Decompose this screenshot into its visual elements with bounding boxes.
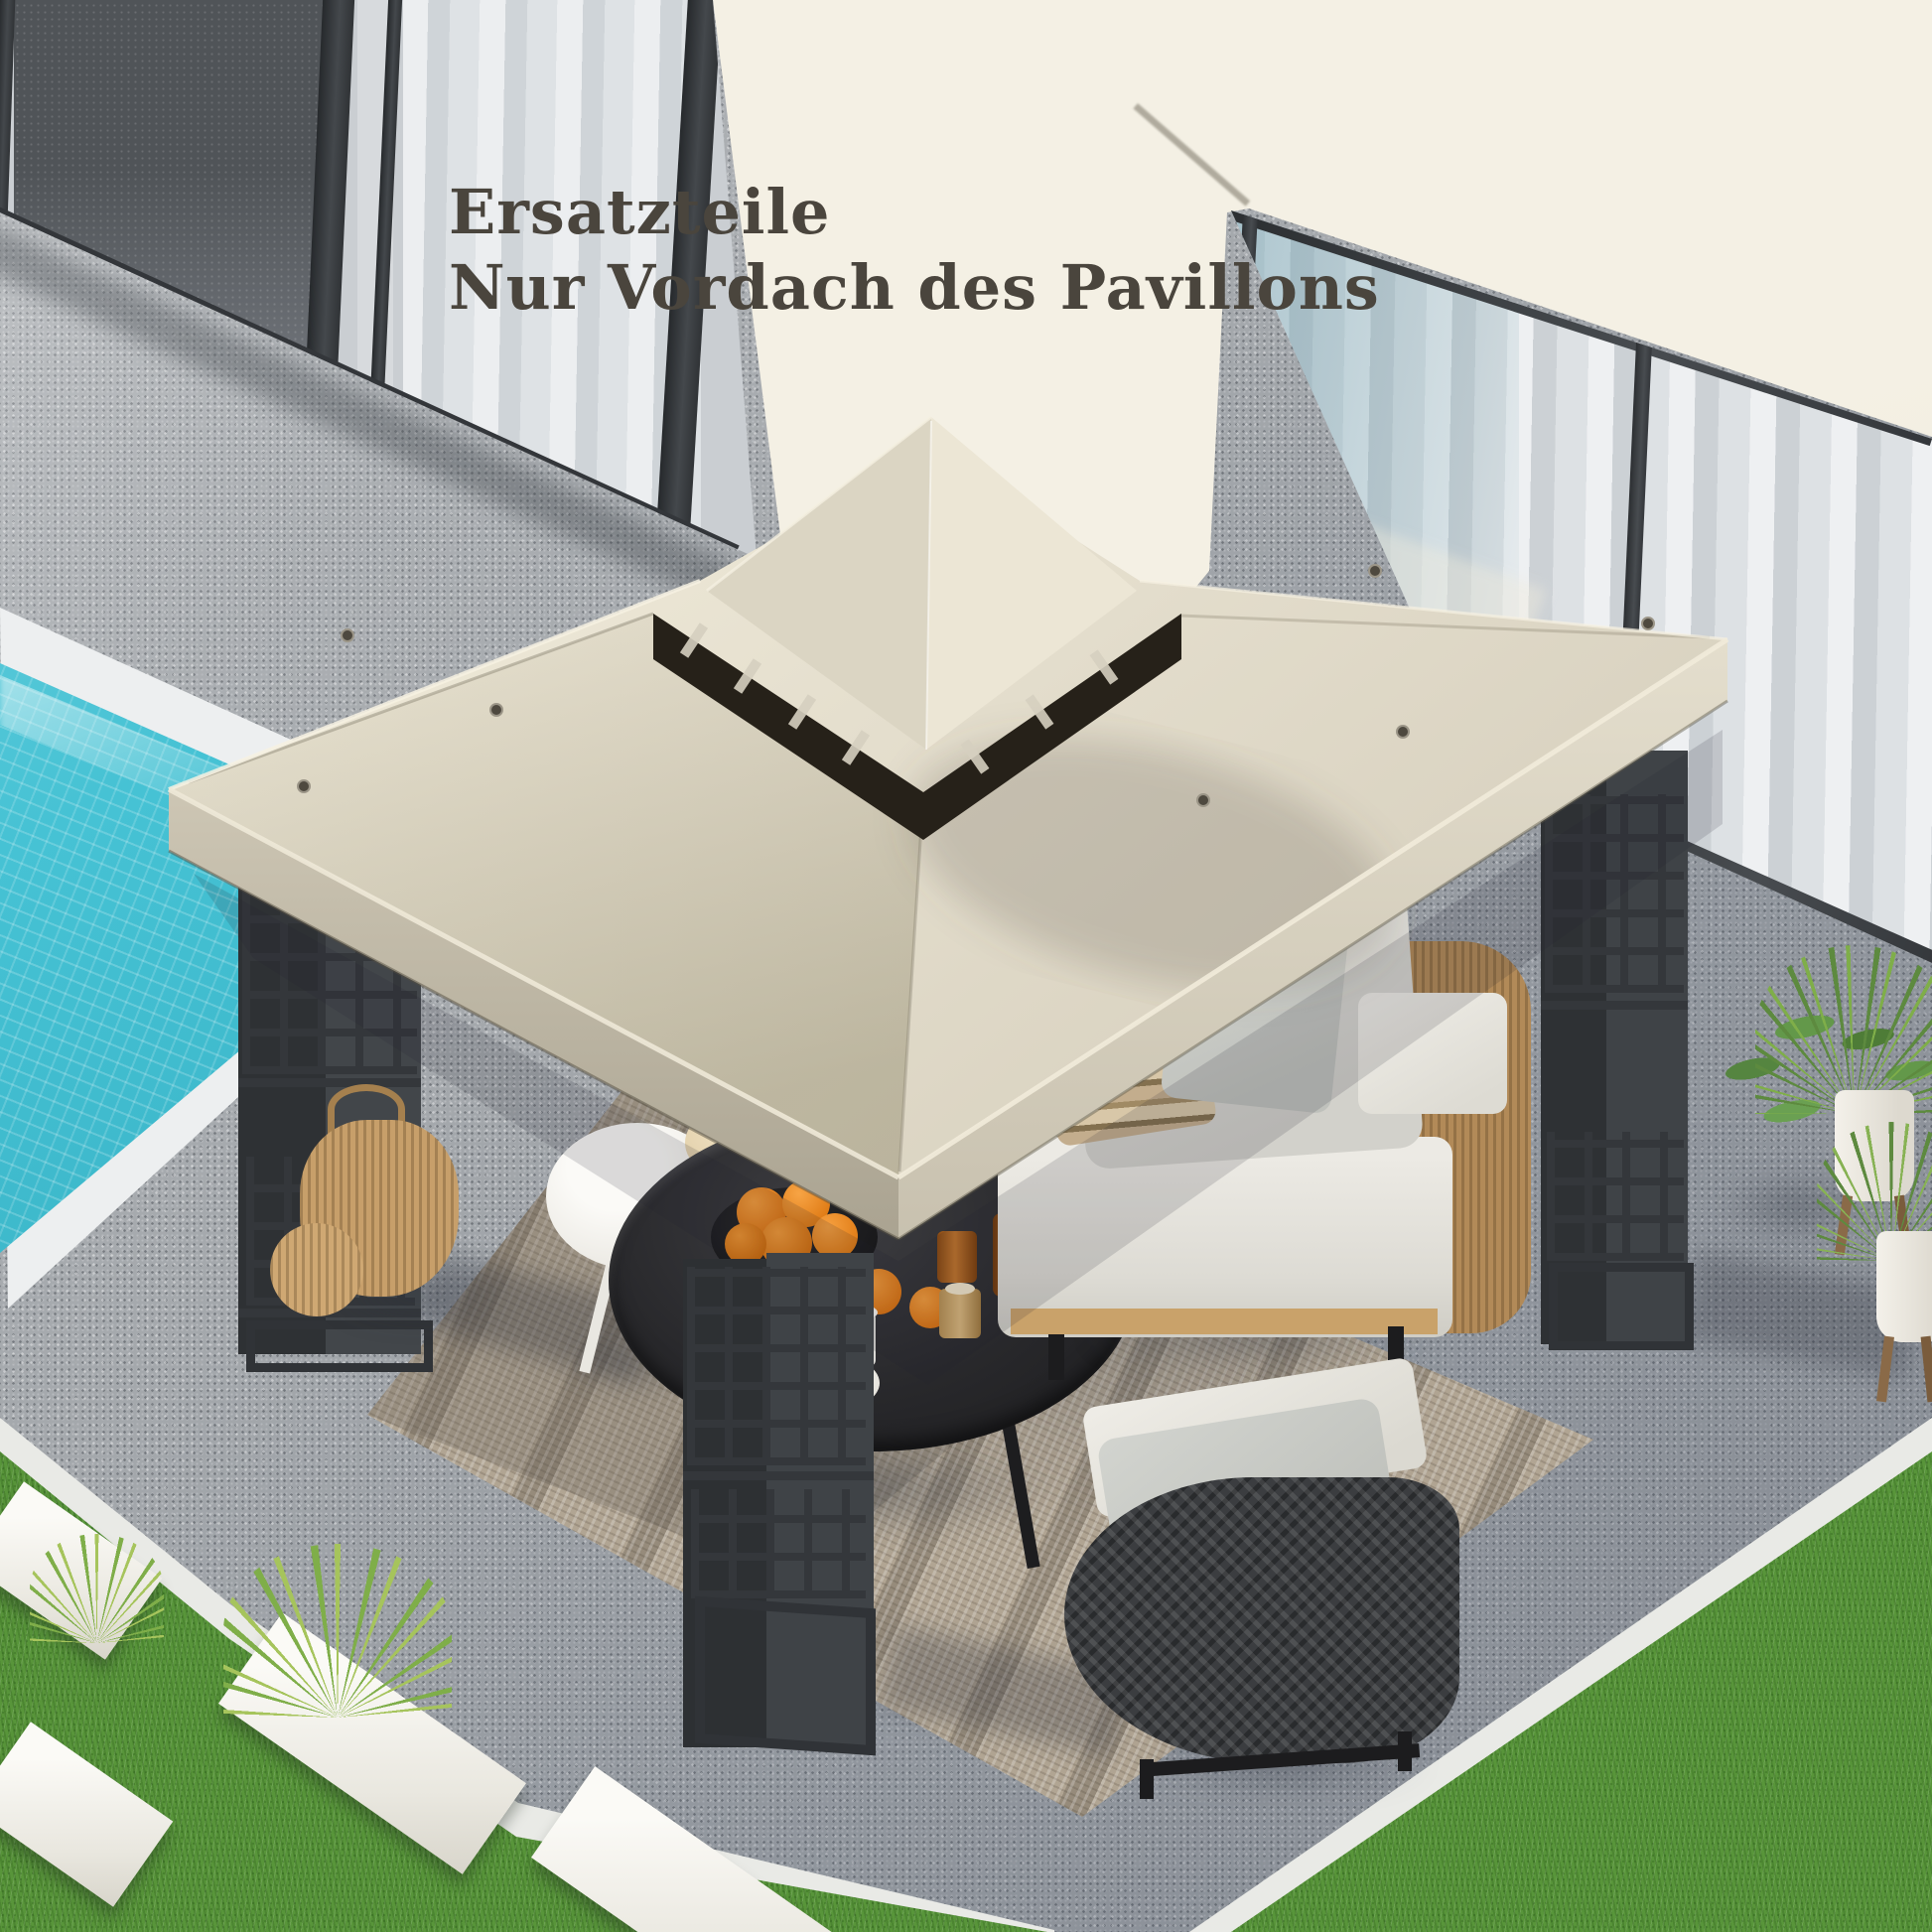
post-lattice-bottom <box>691 1489 866 1598</box>
grass-plant <box>1755 945 1932 1114</box>
plant-pot <box>1876 1231 1932 1342</box>
post-lattice-top <box>687 1267 866 1465</box>
post-rail <box>683 1471 874 1480</box>
gazebo-canopy <box>0 0 1932 1932</box>
post-base-frame <box>695 1596 876 1756</box>
patio-scene: Ersatzteile Nur Vordach des Pavillons <box>0 0 1932 1932</box>
